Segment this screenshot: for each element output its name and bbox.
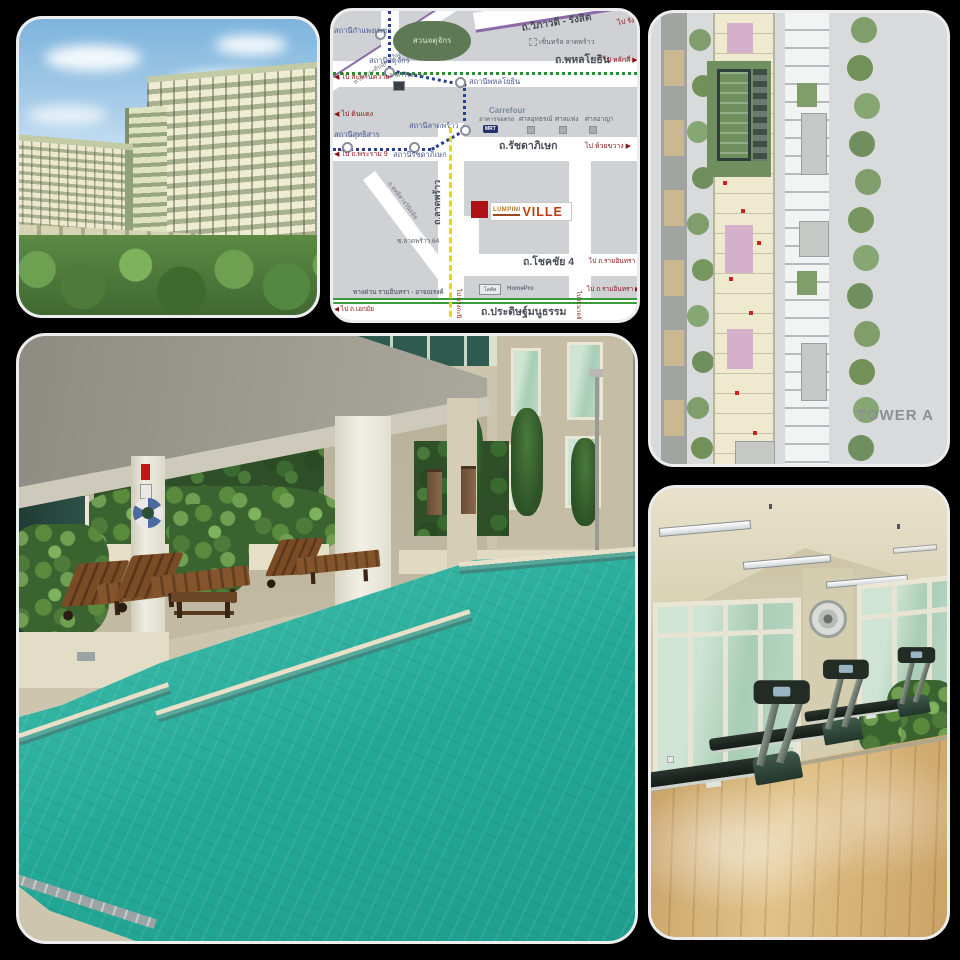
road-label: ถ.ลาดพร้าว	[433, 180, 442, 225]
direction-label: ไป ถ.รามอินทรา ▶	[589, 259, 640, 266]
yellow-line	[449, 127, 452, 323]
lounger-leg	[311, 572, 316, 584]
sun-lounger	[261, 524, 391, 590]
direction-label: ไป ถ.รามอินทรา ▶	[587, 287, 640, 294]
direction-label: ไป ถ.นวลจันทร์	[575, 291, 581, 323]
lounger-leg	[363, 569, 368, 581]
parking-garage-icon	[393, 81, 405, 91]
carrefour-label: Carrefour	[489, 107, 525, 115]
lumpini-logo: LUMPINI VILLE	[490, 202, 572, 221]
life-ring	[133, 498, 163, 528]
tower-corner-edge	[633, 336, 638, 548]
treadmill	[648, 650, 821, 812]
homepro-label: HomePro	[507, 286, 534, 292]
tower-window	[511, 348, 541, 416]
station-label: สถานีลาดพร้าว	[409, 122, 459, 130]
garden-tree-band	[16, 235, 320, 318]
road-label: ถ.พหลโยธิน	[555, 55, 610, 66]
road-label: ถ.โชคชัย 4	[523, 257, 574, 268]
fire-extinguisher-sign	[141, 464, 150, 480]
court-label: ศาลอาญา	[585, 117, 614, 124]
unit-room-pink	[725, 225, 753, 273]
lotus-store-icon: โลตัส	[479, 284, 501, 295]
direction-label: ไป บางกะปิ	[455, 289, 461, 318]
tree-row-left	[689, 29, 711, 51]
treadmill-console	[823, 660, 869, 679]
station-label: สถานีรัชดาภิเษก	[393, 151, 447, 159]
side-table	[171, 592, 237, 602]
cloud	[215, 35, 287, 55]
expressway-label: ทางด่วน รามอินทรา - อาจณรงค์	[353, 290, 444, 297]
treadmill-screen	[911, 651, 923, 657]
property-collage: สวนจตุจักร สถานีกำแพงเพชร สถานีจตุจักร อ…	[0, 0, 960, 960]
entry-block	[735, 441, 775, 467]
road-label: ถ.รัชดาภิเษก	[499, 141, 558, 152]
court-building-icon	[527, 126, 535, 134]
lamp-head	[589, 369, 603, 377]
road-chok-chai-4-stub	[459, 216, 479, 258]
mrt-line-segment	[463, 81, 466, 129]
unit-markers	[723, 181, 727, 185]
lumpini-logo-word: LUMPINI	[493, 207, 520, 216]
cloud	[45, 45, 141, 71]
direction-label: ไป หลักสี่ ▶	[603, 57, 638, 64]
shower-post	[427, 469, 442, 515]
lumpini-logo-mark	[471, 201, 488, 218]
plan-swimming-pool	[717, 69, 751, 161]
central-ladprao-label: เซ็นทรัล ลาดพร้าว	[539, 39, 595, 46]
trimmed-tree	[511, 408, 543, 516]
parking-garage-label: อาคารจอดรถ	[479, 117, 514, 123]
road-label: ถ.ประดิษฐ์มนูธรรม	[481, 307, 566, 318]
cloud	[27, 105, 107, 125]
ville-logo-word: VILLE	[522, 205, 562, 219]
planter-strip	[664, 16, 684, 461]
access-road	[661, 13, 687, 464]
tower-label: TOWER A	[857, 407, 934, 424]
expressway-line	[333, 298, 637, 304]
planter-square	[797, 271, 817, 295]
floor-plan-tower-a: TOWER A	[648, 10, 950, 467]
side-table-leg	[177, 602, 182, 618]
lounger-wheel	[117, 602, 128, 613]
lotus-store-label: โลตัส	[484, 286, 496, 294]
treadmill-screen	[773, 687, 790, 697]
location-map: สวนจตุจักร สถานีกำแพงเพชร สถานีจตุจักร อ…	[330, 8, 640, 323]
shower-post	[461, 466, 476, 514]
station-dot-lat-phrao	[460, 125, 471, 136]
service-block	[801, 343, 827, 401]
lamp-post	[595, 376, 599, 561]
station-label: สถานีสุทธิสาร	[334, 131, 379, 139]
pool-deck	[753, 69, 767, 161]
station-label: สถานีพหลโยธิน	[469, 78, 520, 86]
sun-lounger	[109, 535, 264, 615]
planter-square	[797, 83, 817, 107]
court-building-icon	[559, 126, 567, 134]
station-label: สถานีกำแพงเพชร	[334, 27, 391, 35]
treadmill-screen	[839, 665, 853, 673]
chatuchak-park: สวนจตุจักร	[393, 21, 471, 61]
sprinkler	[769, 504, 772, 509]
direction-label: ไป ห้วยขวาง ▶	[585, 143, 631, 150]
court-building-icon	[589, 126, 597, 134]
fitness-room-photo	[648, 485, 950, 940]
service-block	[801, 113, 827, 175]
lounger-wheel	[63, 610, 74, 621]
sprinkler	[897, 524, 900, 529]
court-label: ศาลอุทธรณ์	[519, 117, 552, 124]
treadmill-console	[754, 680, 810, 704]
direction-label: ไป รังสิต ▶	[617, 15, 640, 27]
court-label: ศาลแพ่ง	[555, 117, 578, 124]
treadmill-brand-label	[706, 781, 722, 788]
notice-sign	[140, 484, 152, 499]
soi-label: ซ.ลาดพร้าว 64	[397, 239, 439, 246]
direction-label: ◀ ไป ดินแดง	[334, 111, 373, 118]
treadmill-console	[898, 647, 935, 663]
central-ladprao-icon	[529, 38, 537, 46]
service-block	[799, 221, 829, 257]
direction-label: ◀ ไป ถ.พระราม 9	[334, 151, 388, 158]
parking-garage-label: อาคารจอดรถ	[389, 73, 424, 79]
lounger-wheel	[267, 579, 276, 588]
station-dot-phahonyothin	[455, 77, 466, 88]
tree-row-right	[851, 17, 877, 43]
mrt-badge: MRT	[483, 125, 498, 133]
unit-room-pink	[727, 23, 753, 53]
direction-label: ◀ ไป ถ.เอกมัย	[334, 307, 374, 314]
side-table-leg	[225, 602, 230, 618]
building-exterior-photo	[16, 16, 320, 318]
step-plate	[77, 652, 95, 661]
park-label: สวนจตุจักร	[413, 37, 452, 45]
unit-room-pink	[727, 329, 753, 369]
swimming-pool-photo	[16, 333, 638, 944]
